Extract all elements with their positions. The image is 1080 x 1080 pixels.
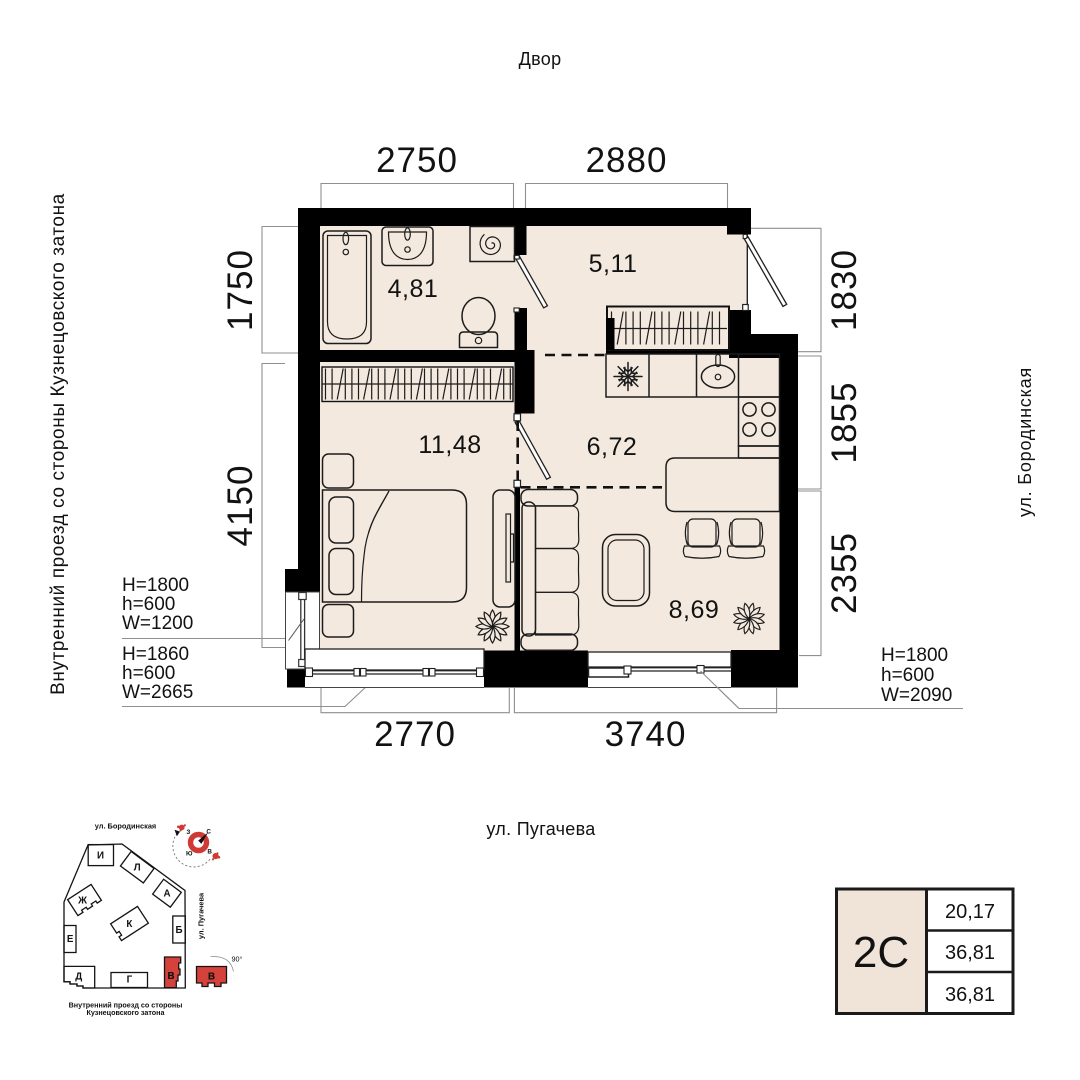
svg-text:2750: 2750 xyxy=(376,141,458,180)
svg-text:Н=1860: Н=1860 xyxy=(122,644,189,665)
svg-text:1855: 1855 xyxy=(825,382,864,464)
svg-text:Д: Д xyxy=(75,972,82,983)
svg-text:36,81: 36,81 xyxy=(945,984,995,1006)
svg-text:2770: 2770 xyxy=(374,715,456,754)
svg-text:ул. Пугачева: ул. Пугачева xyxy=(197,892,206,939)
svg-text:2С: 2С xyxy=(853,928,909,977)
svg-text:20,17: 20,17 xyxy=(945,901,995,923)
svg-text:3740: 3740 xyxy=(605,715,687,754)
svg-text:Б: Б xyxy=(175,925,182,936)
svg-text:4150: 4150 xyxy=(221,465,260,547)
svg-text:И: И xyxy=(97,851,104,862)
svg-text:Кузнецовского затона: Кузнецовского затона xyxy=(86,1008,165,1017)
svg-text:Н=1800: Н=1800 xyxy=(122,575,189,596)
svg-text:8,69: 8,69 xyxy=(669,596,720,624)
svg-text:В: В xyxy=(207,849,212,856)
svg-text:ул. Пугачева: ул. Пугачева xyxy=(486,819,596,839)
svg-text:4,81: 4,81 xyxy=(388,275,439,303)
svg-text:W=2665: W=2665 xyxy=(122,682,193,703)
svg-text:Внутренний проезд со стороны К: Внутренний проезд со стороны Кузнецовско… xyxy=(48,193,69,695)
svg-text:К: К xyxy=(126,919,132,930)
svg-text:Г: Г xyxy=(127,974,133,985)
svg-text:З: З xyxy=(186,829,190,836)
svg-text:5,11: 5,11 xyxy=(589,250,638,278)
svg-text:В: В xyxy=(167,971,174,982)
svg-text:1830: 1830 xyxy=(825,249,864,331)
svg-text:Н=1800: Н=1800 xyxy=(881,645,948,666)
svg-text:2355: 2355 xyxy=(825,532,864,614)
svg-text:2880: 2880 xyxy=(586,141,668,180)
svg-text:11,48: 11,48 xyxy=(418,431,481,459)
svg-text:В: В xyxy=(208,971,215,982)
svg-text:С: С xyxy=(206,829,211,836)
svg-text:6,72: 6,72 xyxy=(587,433,638,461)
svg-text:90°: 90° xyxy=(232,955,243,964)
svg-text:W=1200: W=1200 xyxy=(122,613,193,634)
svg-text:Двор: Двор xyxy=(519,49,562,69)
svg-text:ул. Бородинская: ул. Бородинская xyxy=(1015,367,1035,517)
svg-text:Л: Л xyxy=(134,863,141,874)
svg-text:36,81: 36,81 xyxy=(945,942,995,964)
svg-text:А: А xyxy=(163,889,170,900)
svg-text:h=600: h=600 xyxy=(881,665,934,686)
svg-text:W=2090: W=2090 xyxy=(881,685,952,706)
svg-text:ул. Бородинская: ул. Бородинская xyxy=(95,821,157,830)
svg-text:1750: 1750 xyxy=(221,249,260,331)
svg-text:h=600: h=600 xyxy=(122,663,175,684)
svg-text:Ю: Ю xyxy=(186,851,193,858)
svg-text:Е: Е xyxy=(67,934,74,945)
svg-text:h=600: h=600 xyxy=(122,594,175,615)
svg-text:Ж: Ж xyxy=(77,896,87,907)
